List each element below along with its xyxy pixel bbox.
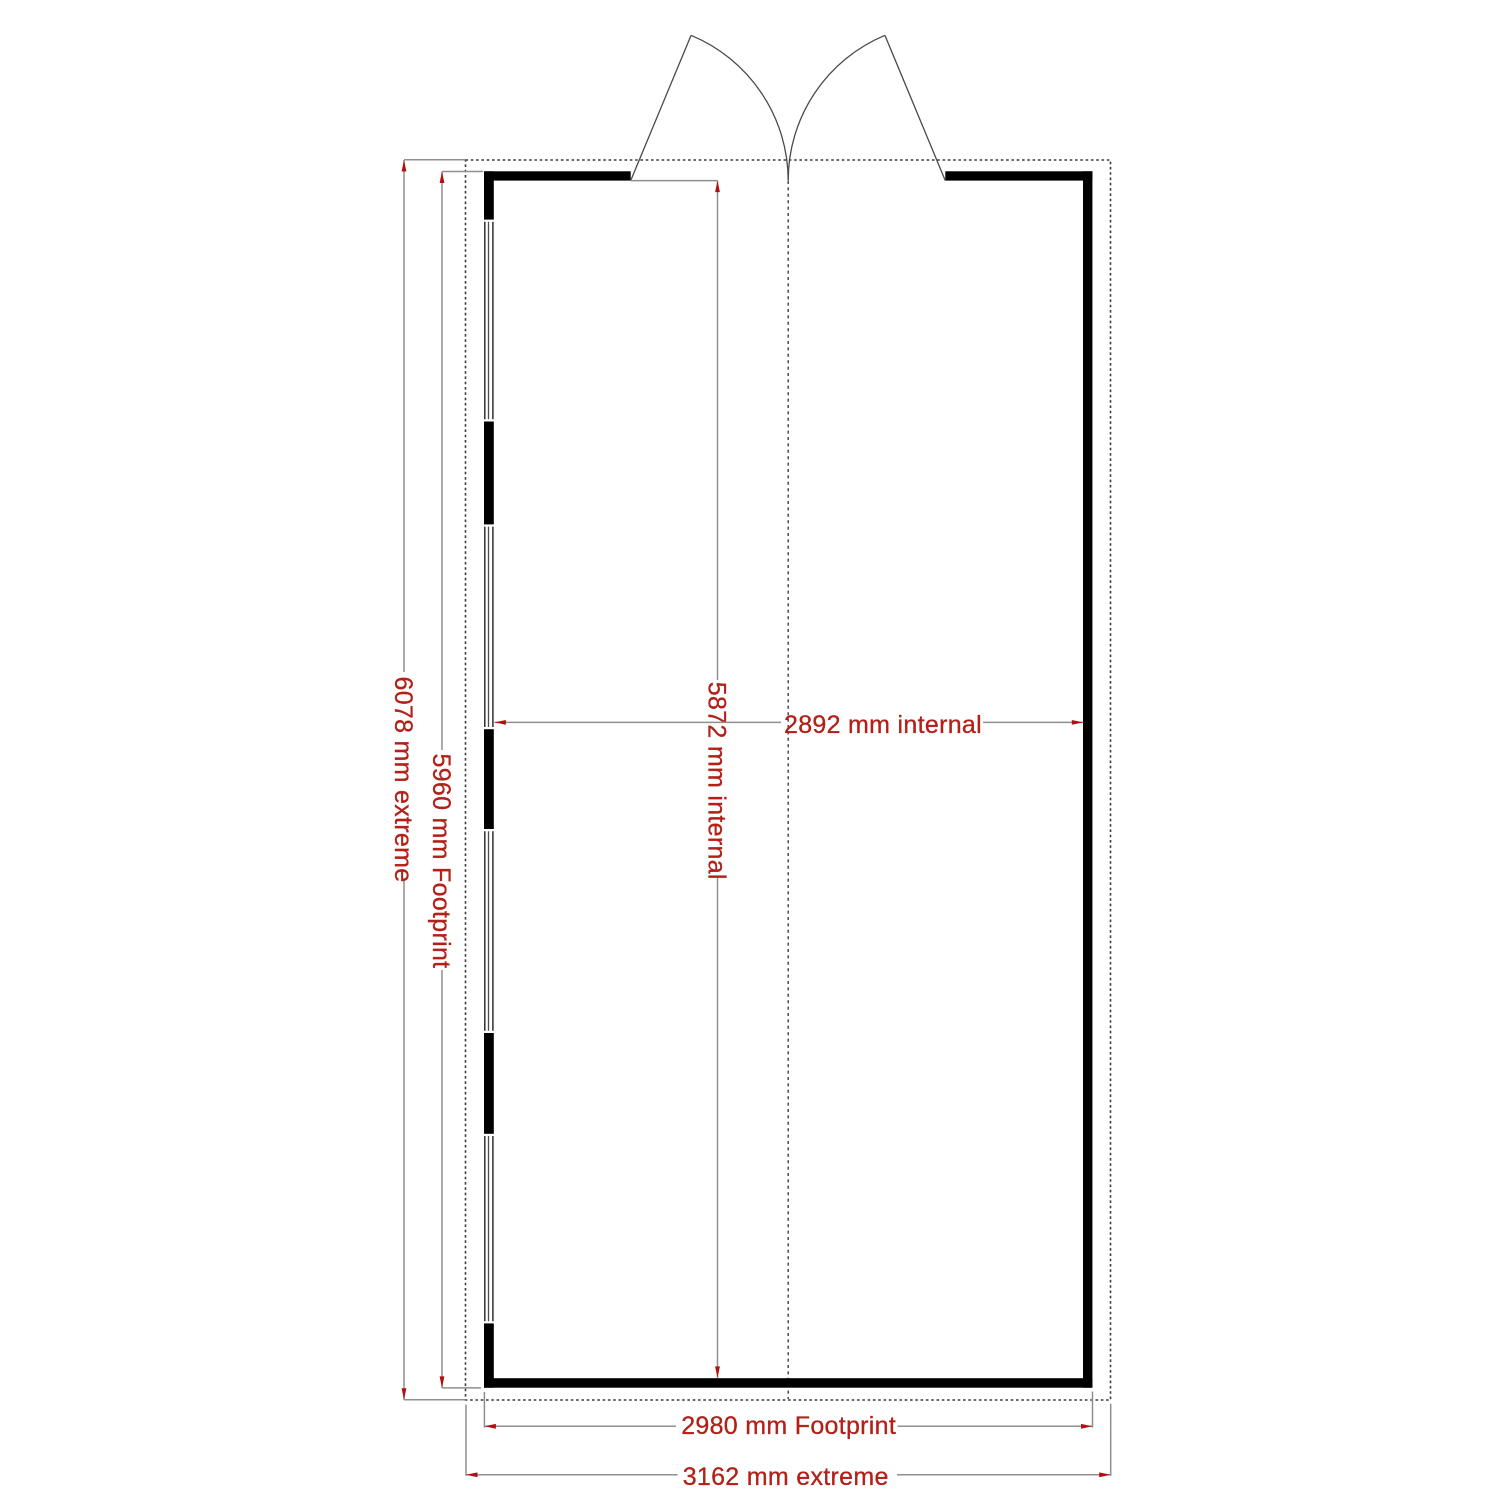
svg-text:5960 mm Footprint: 5960 mm Footprint <box>427 754 455 969</box>
svg-text:2892 mm internal: 2892 mm internal <box>784 711 982 739</box>
svg-text:5872 mm internal: 5872 mm internal <box>703 682 731 880</box>
svg-text:2980 mm Footprint: 2980 mm Footprint <box>681 1412 896 1440</box>
svg-text:3162 mm extreme: 3162 mm extreme <box>683 1463 889 1491</box>
svg-text:6078 mm extreme: 6078 mm extreme <box>389 677 417 883</box>
